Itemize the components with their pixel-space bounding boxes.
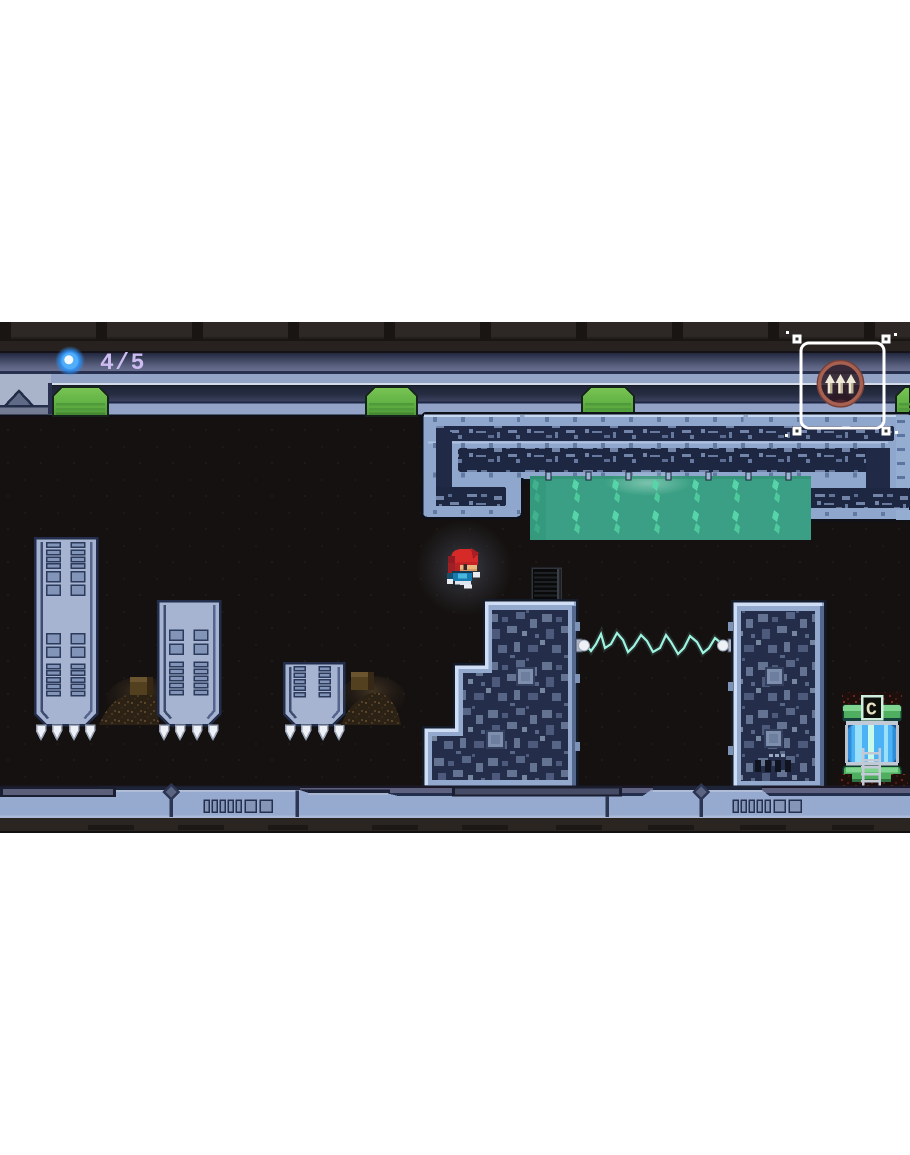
svg-text:C: C	[866, 701, 877, 721]
svg-text:4/5: 4/5	[100, 350, 146, 376]
